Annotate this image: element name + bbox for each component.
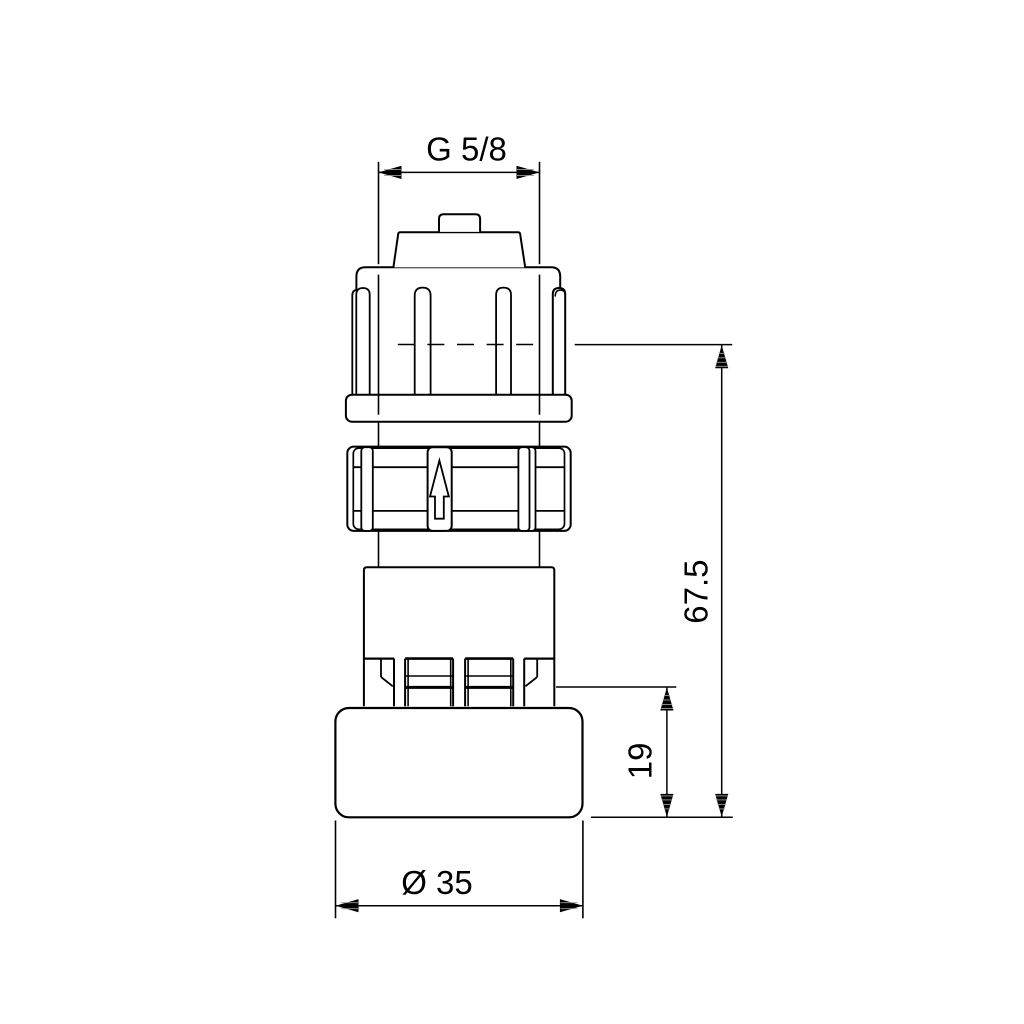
- svg-text:19: 19: [622, 743, 659, 780]
- svg-text:Ø 35: Ø 35: [401, 864, 473, 901]
- svg-text:G 5/8: G 5/8: [426, 131, 507, 168]
- svg-text:67.5: 67.5: [678, 559, 715, 623]
